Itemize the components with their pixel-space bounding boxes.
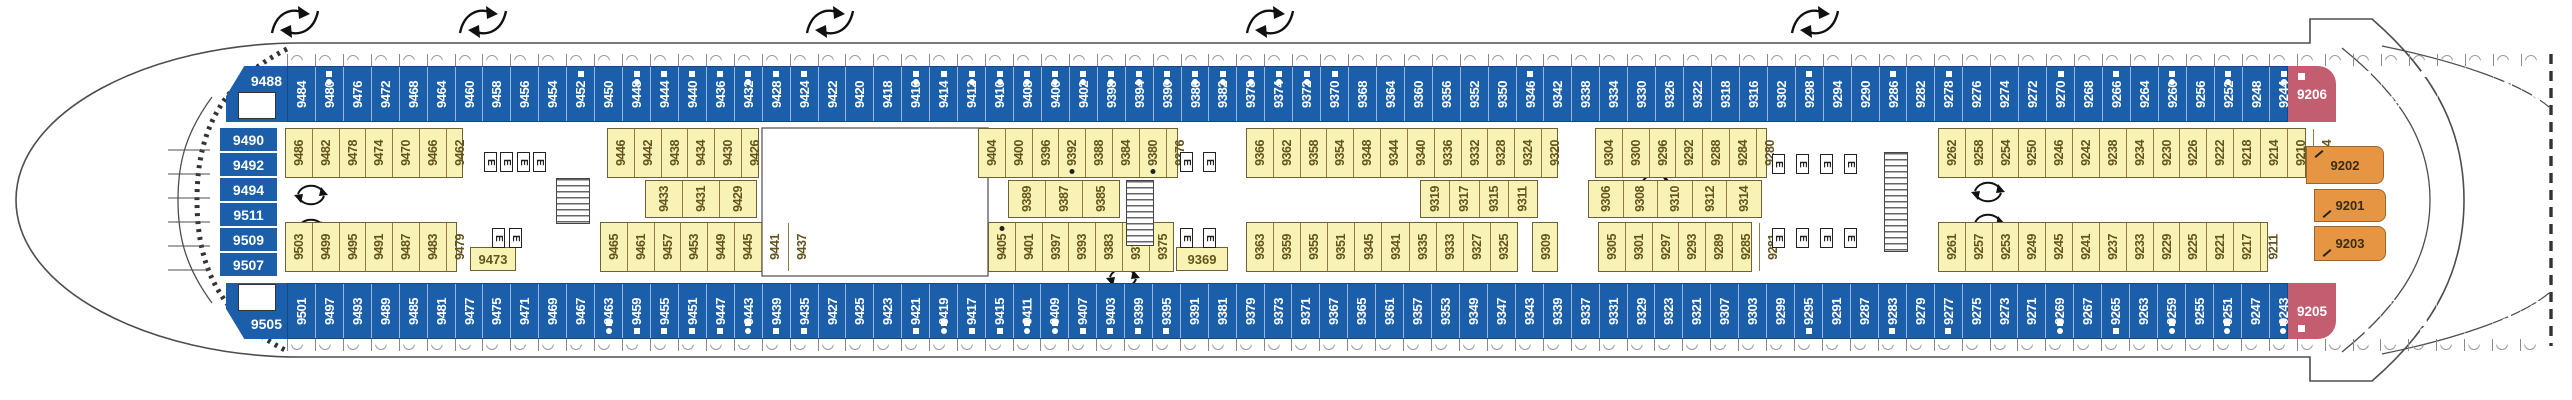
- cabin-9320[interactable]: 9320: [1541, 129, 1568, 177]
- cabin-9358[interactable]: 9358: [1300, 129, 1327, 177]
- cabin-9287[interactable]: 9287: [1850, 284, 1878, 338]
- cabin-9453[interactable]: 9453: [680, 223, 707, 271]
- cabin-9437[interactable]: 9437: [788, 223, 815, 271]
- cabin-9431[interactable]: 9431: [682, 181, 719, 217]
- cabin-9419[interactable]: 9419: [929, 284, 957, 338]
- cabin-9319[interactable]: 9319: [1421, 181, 1449, 217]
- cabin-9428[interactable]: 9428: [762, 67, 790, 121]
- cabin-9233[interactable]: 9233: [2126, 223, 2153, 271]
- cabin-9422[interactable]: 9422: [818, 67, 846, 121]
- cabin-9416[interactable]: 9416: [901, 67, 929, 121]
- cabin-9460[interactable]: 9460: [455, 67, 483, 121]
- cabin-9253[interactable]: 9253: [1992, 223, 2019, 271]
- cabin-9222[interactable]: 9222: [2206, 129, 2233, 177]
- cabin-9480[interactable]: 9480: [315, 67, 343, 121]
- cabin-9454[interactable]: 9454: [538, 67, 566, 121]
- cabin-9307[interactable]: 9307: [1710, 284, 1738, 338]
- cabin-number: 9318: [1718, 81, 1733, 108]
- cabin-9257[interactable]: 9257: [1965, 223, 1992, 271]
- cabin-9409[interactable]: 9409: [1040, 284, 1068, 338]
- cabin-9311[interactable]: 9311: [1508, 181, 1537, 217]
- cabin-9451[interactable]: 9451: [678, 284, 706, 338]
- cabin-9501[interactable]: 9501: [288, 284, 315, 338]
- cabin-9337[interactable]: 9337: [1571, 284, 1599, 338]
- cabin-9315[interactable]: 9315: [1479, 181, 1508, 217]
- cabin-9481[interactable]: 9481: [427, 284, 455, 338]
- cabin-9341[interactable]: 9341: [1381, 223, 1408, 271]
- cabin-9369[interactable]: 9369: [1176, 247, 1228, 271]
- cabin-9208[interactable]: 9208: [2521, 67, 2549, 121]
- cabin-9452[interactable]: 9452: [566, 67, 594, 121]
- cabin-9449[interactable]: 9449: [707, 223, 734, 271]
- berth-markers: [2169, 71, 2175, 85]
- cabin-9439[interactable]: 9439: [762, 284, 790, 338]
- cabin-9211[interactable]: 9211: [2260, 223, 2286, 271]
- cabin-9270[interactable]: 9270: [2046, 67, 2074, 121]
- cabin-9429[interactable]: 9429: [719, 181, 756, 217]
- cabin-9333[interactable]: 9333: [1436, 223, 1463, 271]
- cabin-9297[interactable]: 9297: [1652, 223, 1679, 271]
- cabin-9414[interactable]: 9414: [929, 67, 957, 121]
- cabin-9328[interactable]: 9328: [1487, 129, 1514, 177]
- cabin-9404[interactable]: 9404: [979, 129, 1005, 177]
- cabin-9269[interactable]: 9269: [2045, 284, 2073, 338]
- cabin-9207[interactable]: 9207: [2520, 284, 2548, 338]
- cabin-9306[interactable]: 9306: [1589, 181, 1623, 217]
- cabin-9354[interactable]: 9354: [1326, 129, 1353, 177]
- cabin-9294[interactable]: 9294: [1823, 67, 1851, 121]
- cabin-9276[interactable]: 9276: [1962, 67, 1990, 121]
- cabin-9465[interactable]: 9465: [601, 223, 627, 271]
- cabin-9312[interactable]: 9312: [1692, 181, 1727, 217]
- cabin-9412[interactable]: 9412: [957, 67, 985, 121]
- square-marker-icon: [2532, 71, 2538, 77]
- cabin-9205[interactable]: 9205: [2288, 283, 2336, 339]
- cabin-9427[interactable]: 9427: [818, 284, 846, 338]
- cabin-9457[interactable]: 9457: [654, 223, 681, 271]
- cabin-9283[interactable]: 9283: [1878, 284, 1906, 338]
- cabin-9385[interactable]: 9385: [1082, 181, 1119, 217]
- cabin-9450[interactable]: 9450: [594, 67, 622, 121]
- cabin-9469[interactable]: 9469: [538, 284, 566, 338]
- cabin-9345[interactable]: 9345: [1354, 223, 1381, 271]
- cabin-9252[interactable]: 9252: [2214, 67, 2242, 121]
- cabin-9301[interactable]: 9301: [1625, 223, 1652, 271]
- cabin-9237[interactable]: 9237: [2099, 223, 2126, 271]
- cabin-9374[interactable]: 9374: [1264, 67, 1292, 121]
- cabin-9373[interactable]: 9373: [1264, 284, 1292, 338]
- cabin-9275[interactable]: 9275: [1962, 284, 1990, 338]
- cabin-9291[interactable]: 9291: [1822, 284, 1850, 338]
- cabin-9278[interactable]: 9278: [1934, 67, 1962, 121]
- cabin-9420[interactable]: 9420: [845, 67, 873, 121]
- cabin-9234[interactable]: 9234: [2126, 129, 2153, 177]
- cabin-9288[interactable]: 9288: [1702, 129, 1729, 177]
- cabin-9271[interactable]: 9271: [2017, 284, 2045, 338]
- cabin-9425[interactable]: 9425: [845, 284, 873, 338]
- cabin-9355[interactable]: 9355: [1300, 223, 1327, 271]
- cabin-9219[interactable]: 9219: [2436, 284, 2464, 338]
- cabin-9272[interactable]: 9272: [2018, 67, 2046, 121]
- cabin-9260[interactable]: 9260: [2158, 67, 2186, 121]
- cabin-9368[interactable]: 9368: [1348, 67, 1376, 121]
- dot-marker-icon: [1164, 79, 1170, 85]
- cabin-9364[interactable]: 9364: [1376, 67, 1404, 121]
- cabin-9486[interactable]: 9486: [286, 129, 312, 177]
- cabin-9478[interactable]: 9478: [339, 129, 366, 177]
- cabin-9389[interactable]: 9389: [1009, 181, 1045, 217]
- cabin-9441[interactable]: 9441: [761, 223, 788, 271]
- cabin-9382[interactable]: 9382: [1208, 67, 1236, 121]
- cabin-9285[interactable]: 9285: [1732, 223, 1759, 271]
- cabin-9448[interactable]: 9448: [622, 67, 650, 121]
- cabin-9284[interactable]: 9284: [1729, 129, 1756, 177]
- cabin-9371[interactable]: 9371: [1291, 284, 1319, 338]
- cabin-9310[interactable]: 9310: [1657, 181, 1692, 217]
- cabin-9295[interactable]: 9295: [1794, 284, 1822, 338]
- cabin-9289[interactable]: 9289: [1705, 223, 1732, 271]
- cabin-9228[interactable]: 9228: [2381, 67, 2409, 121]
- cabin-9300[interactable]: 9300: [1622, 129, 1649, 177]
- cabin-9282[interactable]: 9282: [1906, 67, 1934, 121]
- cabin-9353[interactable]: 9353: [1431, 284, 1459, 338]
- cabin-9464[interactable]: 9464: [427, 67, 455, 121]
- cabin-9403[interactable]: 9403: [1096, 284, 1124, 338]
- cabin-9394[interactable]: 9394: [1125, 67, 1153, 121]
- cabin-9421[interactable]: 9421: [901, 284, 929, 338]
- cabin-9298[interactable]: 9298: [1795, 67, 1823, 121]
- cabin-9334[interactable]: 9334: [1599, 67, 1627, 121]
- cabin-9424[interactable]: 9424: [790, 67, 818, 121]
- cabin-9206[interactable]: 9206: [2288, 66, 2336, 122]
- cabin-9293[interactable]: 9293: [1678, 223, 1705, 271]
- cabin-9259[interactable]: 9259: [2157, 284, 2185, 338]
- cabin-9323[interactable]: 9323: [1654, 284, 1682, 338]
- cabin-9308[interactable]: 9308: [1623, 181, 1658, 217]
- cabin-9331[interactable]: 9331: [1599, 284, 1627, 338]
- elevator-letter: E: [501, 159, 512, 166]
- cabin-9338[interactable]: 9338: [1571, 67, 1599, 121]
- cabin-9251[interactable]: 9251: [2213, 284, 2241, 338]
- cabin-9511[interactable]: 9511: [220, 203, 277, 226]
- cabin-9256[interactable]: 9256: [2186, 67, 2214, 121]
- cabin-9290[interactable]: 9290: [1851, 67, 1879, 121]
- cabin-9378[interactable]: 9378: [1236, 67, 1264, 121]
- cabin-9497[interactable]: 9497: [315, 284, 343, 338]
- cabin-9444[interactable]: 9444: [650, 67, 678, 121]
- cabin-9304[interactable]: 9304: [1596, 129, 1622, 177]
- cabin-9224[interactable]: 9224: [2409, 67, 2437, 121]
- cabin-9344[interactable]: 9344: [1380, 129, 1407, 177]
- cabin-9258[interactable]: 9258: [1965, 129, 1992, 177]
- cabin-9495[interactable]: 9495: [339, 223, 366, 271]
- cabin-9410[interactable]: 9410: [985, 67, 1013, 121]
- cabin-9458[interactable]: 9458: [482, 67, 510, 121]
- cabin-9509[interactable]: 9509: [220, 228, 277, 251]
- cabin-9367[interactable]: 9367: [1319, 284, 1347, 338]
- cabin-9423[interactable]: 9423: [873, 284, 901, 338]
- cabin-9286[interactable]: 9286: [1879, 67, 1907, 121]
- cabin-9324[interactable]: 9324: [1514, 129, 1541, 177]
- cabin-9383[interactable]: 9383: [1095, 223, 1122, 271]
- cabin-9411[interactable]: 9411: [1013, 284, 1040, 338]
- cabin-9393[interactable]: 9393: [1068, 223, 1095, 271]
- cabin-9340[interactable]: 9340: [1407, 129, 1434, 177]
- cabin-9432[interactable]: 9432: [734, 67, 762, 121]
- cabin-9209[interactable]: 9209: [2492, 284, 2520, 338]
- cabin-9356[interactable]: 9356: [1432, 67, 1460, 121]
- cabin-9309[interactable]: 9309: [1533, 223, 1559, 271]
- cabin-9499[interactable]: 9499: [312, 223, 339, 271]
- cabin-9247[interactable]: 9247: [2241, 284, 2269, 338]
- cabin-9446[interactable]: 9446: [608, 129, 634, 177]
- cabin-9391[interactable]: 9391: [1180, 284, 1208, 338]
- cabin-9296[interactable]: 9296: [1649, 129, 1676, 177]
- cabin-9466[interactable]: 9466: [419, 129, 446, 177]
- cabin-9392[interactable]: 9392: [1058, 129, 1085, 177]
- cabin-9246[interactable]: 9246: [2045, 129, 2072, 177]
- cabin-9262[interactable]: 9262: [1939, 129, 1965, 177]
- cabin-9350[interactable]: 9350: [1488, 67, 1516, 121]
- cabin-9395[interactable]: 9395: [1152, 284, 1180, 338]
- cabin-9366[interactable]: 9366: [1247, 129, 1273, 177]
- cabin-number: 9385: [1094, 186, 1108, 212]
- cabin-9490[interactable]: 9490: [220, 128, 277, 151]
- cabin-9440[interactable]: 9440: [678, 67, 706, 121]
- square-marker-icon: [1080, 71, 1086, 77]
- cabin-9268[interactable]: 9268: [2074, 67, 2102, 121]
- cabin-9314[interactable]: 9314: [1726, 181, 1761, 217]
- balcony-mark-icon: [2323, 249, 2332, 257]
- cabin-9503[interactable]: 9503: [286, 223, 312, 271]
- cabin-9299[interactable]: 9299: [1766, 284, 1794, 338]
- cabin-9461[interactable]: 9461: [627, 223, 654, 271]
- cabin-9336[interactable]: 9336: [1434, 129, 1461, 177]
- cabin-9215[interactable]: 9215: [2464, 284, 2492, 338]
- cabin-9216[interactable]: 9216: [2465, 67, 2493, 121]
- cabin-9223[interactable]: 9223: [2408, 284, 2436, 338]
- cabin-9434[interactable]: 9434: [687, 129, 714, 177]
- cabin-9348[interactable]: 9348: [1353, 129, 1380, 177]
- cabin-9248[interactable]: 9248: [2242, 67, 2270, 121]
- cabin-9445[interactable]: 9445: [734, 223, 761, 271]
- cabin-9305[interactable]: 9305: [1599, 223, 1625, 271]
- cabin-9321[interactable]: 9321: [1682, 284, 1710, 338]
- dot-marker-icon: [634, 79, 640, 85]
- cabin-9318[interactable]: 9318: [1711, 67, 1739, 121]
- cabin-9467[interactable]: 9467: [566, 284, 594, 338]
- cabin-9347[interactable]: 9347: [1487, 284, 1515, 338]
- cabin-9472[interactable]: 9472: [371, 67, 399, 121]
- cabin-9474[interactable]: 9474: [365, 129, 392, 177]
- cabin-9229[interactable]: 9229: [2153, 223, 2180, 271]
- cabin-9351[interactable]: 9351: [1327, 223, 1354, 271]
- cabin-9267[interactable]: 9267: [2073, 284, 2101, 338]
- cabin-9255[interactable]: 9255: [2185, 284, 2213, 338]
- cabin-9339[interactable]: 9339: [1543, 284, 1571, 338]
- cabin-9380[interactable]: 9380: [1139, 129, 1166, 177]
- cabin-9214[interactable]: 9214: [2260, 129, 2287, 177]
- cabin-9426[interactable]: 9426: [741, 129, 768, 177]
- cabin-9361[interactable]: 9361: [1375, 284, 1403, 338]
- cabin-9249[interactable]: 9249: [2018, 223, 2045, 271]
- cabin-9217[interactable]: 9217: [2233, 223, 2260, 271]
- cabin-9245[interactable]: 9245: [2045, 223, 2072, 271]
- cabin-9455[interactable]: 9455: [650, 284, 678, 338]
- cabin-9479[interactable]: 9479: [446, 223, 473, 271]
- cabin-9406[interactable]: 9406: [1041, 67, 1069, 121]
- cabin-9325[interactable]: 9325: [1490, 223, 1517, 271]
- cabin-9362[interactable]: 9362: [1273, 129, 1300, 177]
- cabin-9435[interactable]: 9435: [790, 284, 818, 338]
- cabin-9402[interactable]: 9402: [1069, 67, 1097, 121]
- cabin-9274[interactable]: 9274: [1990, 67, 2018, 121]
- cabin-9212[interactable]: 9212: [2493, 67, 2521, 121]
- cabin-9265[interactable]: 9265: [2101, 284, 2129, 338]
- cabin-9463[interactable]: 9463: [594, 284, 622, 338]
- cabin-9349[interactable]: 9349: [1459, 284, 1487, 338]
- cabin-9433[interactable]: 9433: [646, 181, 682, 217]
- cabin-9220[interactable]: 9220: [2437, 67, 2465, 121]
- cabin-9507[interactable]: 9507: [220, 253, 277, 276]
- cabin-9482[interactable]: 9482: [312, 129, 339, 177]
- cabin-9359[interactable]: 9359: [1273, 223, 1300, 271]
- cabin-9346[interactable]: 9346: [1516, 67, 1544, 121]
- elevator-letter: E: [1797, 161, 1808, 168]
- cabin-9221[interactable]: 9221: [2206, 223, 2233, 271]
- cabin-9494[interactable]: 9494: [220, 178, 277, 201]
- cabin-9322[interactable]: 9322: [1683, 67, 1711, 121]
- cabin-9462[interactable]: 9462: [446, 129, 473, 177]
- cabin-9332[interactable]: 9332: [1461, 129, 1488, 177]
- cabin-9238[interactable]: 9238: [2099, 129, 2126, 177]
- cabin-9201[interactable]: 9201: [2314, 189, 2386, 222]
- cabin-9459[interactable]: 9459: [622, 284, 650, 338]
- cabin-9250[interactable]: 9250: [2018, 129, 2045, 177]
- cabin-9302[interactable]: 9302: [1767, 67, 1795, 121]
- square-marker-icon: [745, 320, 751, 326]
- cabin-9470[interactable]: 9470: [392, 129, 419, 177]
- cabin-9335[interactable]: 9335: [1409, 223, 1436, 271]
- cabin-9292[interactable]: 9292: [1675, 129, 1702, 177]
- cabin-9326[interactable]: 9326: [1655, 67, 1683, 121]
- cabin-number: 9284: [1736, 140, 1750, 166]
- cabin-9399[interactable]: 9399: [1124, 284, 1152, 338]
- cabin-9254[interactable]: 9254: [1992, 129, 2019, 177]
- cabin-9471[interactable]: 9471: [510, 284, 538, 338]
- cabin-9273[interactable]: 9273: [1990, 284, 2018, 338]
- cabin-9430[interactable]: 9430: [714, 129, 741, 177]
- cabin-9384[interactable]: 9384: [1112, 129, 1139, 177]
- cabin-number: 9250: [2025, 140, 2039, 166]
- cabin-9493[interactable]: 9493: [343, 284, 371, 338]
- cabin-9484[interactable]: 9484: [288, 67, 315, 121]
- cabin-9485[interactable]: 9485: [399, 284, 427, 338]
- cabin-9438[interactable]: 9438: [661, 129, 688, 177]
- cabin-9360[interactable]: 9360: [1404, 67, 1432, 121]
- cabin-9476[interactable]: 9476: [343, 67, 371, 121]
- cabin-9227[interactable]: 9227: [2380, 284, 2408, 338]
- cabin-9363[interactable]: 9363: [1247, 223, 1273, 271]
- cabin-9218[interactable]: 9218: [2233, 129, 2260, 177]
- cabin-9456[interactable]: 9456: [510, 67, 538, 121]
- cabin-9489[interactable]: 9489: [371, 284, 399, 338]
- cabin-9329[interactable]: 9329: [1627, 284, 1655, 338]
- cabin-9487[interactable]: 9487: [392, 223, 419, 271]
- cabin-9241[interactable]: 9241: [2072, 223, 2099, 271]
- cabin-9418[interactable]: 9418: [873, 67, 901, 121]
- elevator-icon: E: [1203, 152, 1216, 172]
- cabin-9386[interactable]: 9386: [1181, 67, 1209, 121]
- cabin-9317[interactable]: 9317: [1449, 181, 1478, 217]
- cabin-9400[interactable]: 9400: [1005, 129, 1032, 177]
- cabin-9230[interactable]: 9230: [2153, 129, 2180, 177]
- cabin-9263[interactable]: 9263: [2129, 284, 2157, 338]
- cabin-9225[interactable]: 9225: [2179, 223, 2206, 271]
- cabin-9342[interactable]: 9342: [1543, 67, 1571, 121]
- cabin-9390[interactable]: 9390: [1153, 67, 1181, 121]
- cabin-9381[interactable]: 9381: [1208, 284, 1236, 338]
- cabin-9379[interactable]: 9379: [1236, 284, 1264, 338]
- cabin-9387[interactable]: 9387: [1045, 181, 1082, 217]
- cabin-9316[interactable]: 9316: [1739, 67, 1767, 121]
- cabin-9443[interactable]: 9443: [734, 284, 762, 338]
- cabin-9483[interactable]: 9483: [419, 223, 446, 271]
- cabin-9357[interactable]: 9357: [1403, 284, 1431, 338]
- cabin-9405[interactable]: 9405: [989, 223, 1015, 271]
- cabin-9388[interactable]: 9388: [1085, 129, 1112, 177]
- cabin-9266[interactable]: 9266: [2102, 67, 2130, 121]
- cabin-9370[interactable]: 9370: [1320, 67, 1348, 121]
- cabin-9477[interactable]: 9477: [455, 284, 483, 338]
- cabin-9303[interactable]: 9303: [1738, 284, 1766, 338]
- cabin-9492[interactable]: 9492: [220, 153, 277, 176]
- cabin-9327[interactable]: 9327: [1463, 223, 1490, 271]
- cabin-9397[interactable]: 9397: [1042, 223, 1069, 271]
- cabin-9417[interactable]: 9417: [957, 284, 985, 338]
- cabin-9330[interactable]: 9330: [1627, 67, 1655, 121]
- cabin-9343[interactable]: 9343: [1515, 284, 1543, 338]
- cabin-9231[interactable]: 9231: [2353, 284, 2381, 338]
- cabin-9226[interactable]: 9226: [2179, 129, 2206, 177]
- cabin-9232[interactable]: 9232: [2353, 67, 2381, 121]
- cabin-number: 9320: [1548, 140, 1562, 166]
- cabin-9407[interactable]: 9407: [1068, 284, 1096, 338]
- cabin-9475[interactable]: 9475: [482, 284, 510, 338]
- cabin-9352[interactable]: 9352: [1460, 67, 1488, 121]
- cabin-9203[interactable]: 9203: [2314, 226, 2386, 261]
- cabin-9396[interactable]: 9396: [1032, 129, 1059, 177]
- cabin-9202[interactable]: 9202: [2306, 146, 2384, 184]
- cabin-9401[interactable]: 9401: [1015, 223, 1042, 271]
- cabin-9442[interactable]: 9442: [634, 129, 661, 177]
- cabin-9365[interactable]: 9365: [1347, 284, 1375, 338]
- cabin-9436[interactable]: 9436: [706, 67, 734, 121]
- cabin-9473[interactable]: 9473: [470, 247, 516, 271]
- cabin-9408[interactable]: 9408: [1013, 67, 1041, 121]
- cabin-9398[interactable]: 9398: [1097, 67, 1125, 121]
- cabin-9447[interactable]: 9447: [706, 284, 734, 338]
- cabin-9372[interactable]: 9372: [1292, 67, 1320, 121]
- cabin-9264[interactable]: 9264: [2130, 67, 2158, 121]
- cabin-9491[interactable]: 9491: [365, 223, 392, 271]
- cabin-9279[interactable]: 9279: [1906, 284, 1934, 338]
- cabin-9242[interactable]: 9242: [2072, 129, 2099, 177]
- cabin-9277[interactable]: 9277: [1934, 284, 1962, 338]
- cabin-9415[interactable]: 9415: [985, 284, 1013, 338]
- cabin-9468[interactable]: 9468: [399, 67, 427, 121]
- cabin-9261[interactable]: 9261: [1939, 223, 1965, 271]
